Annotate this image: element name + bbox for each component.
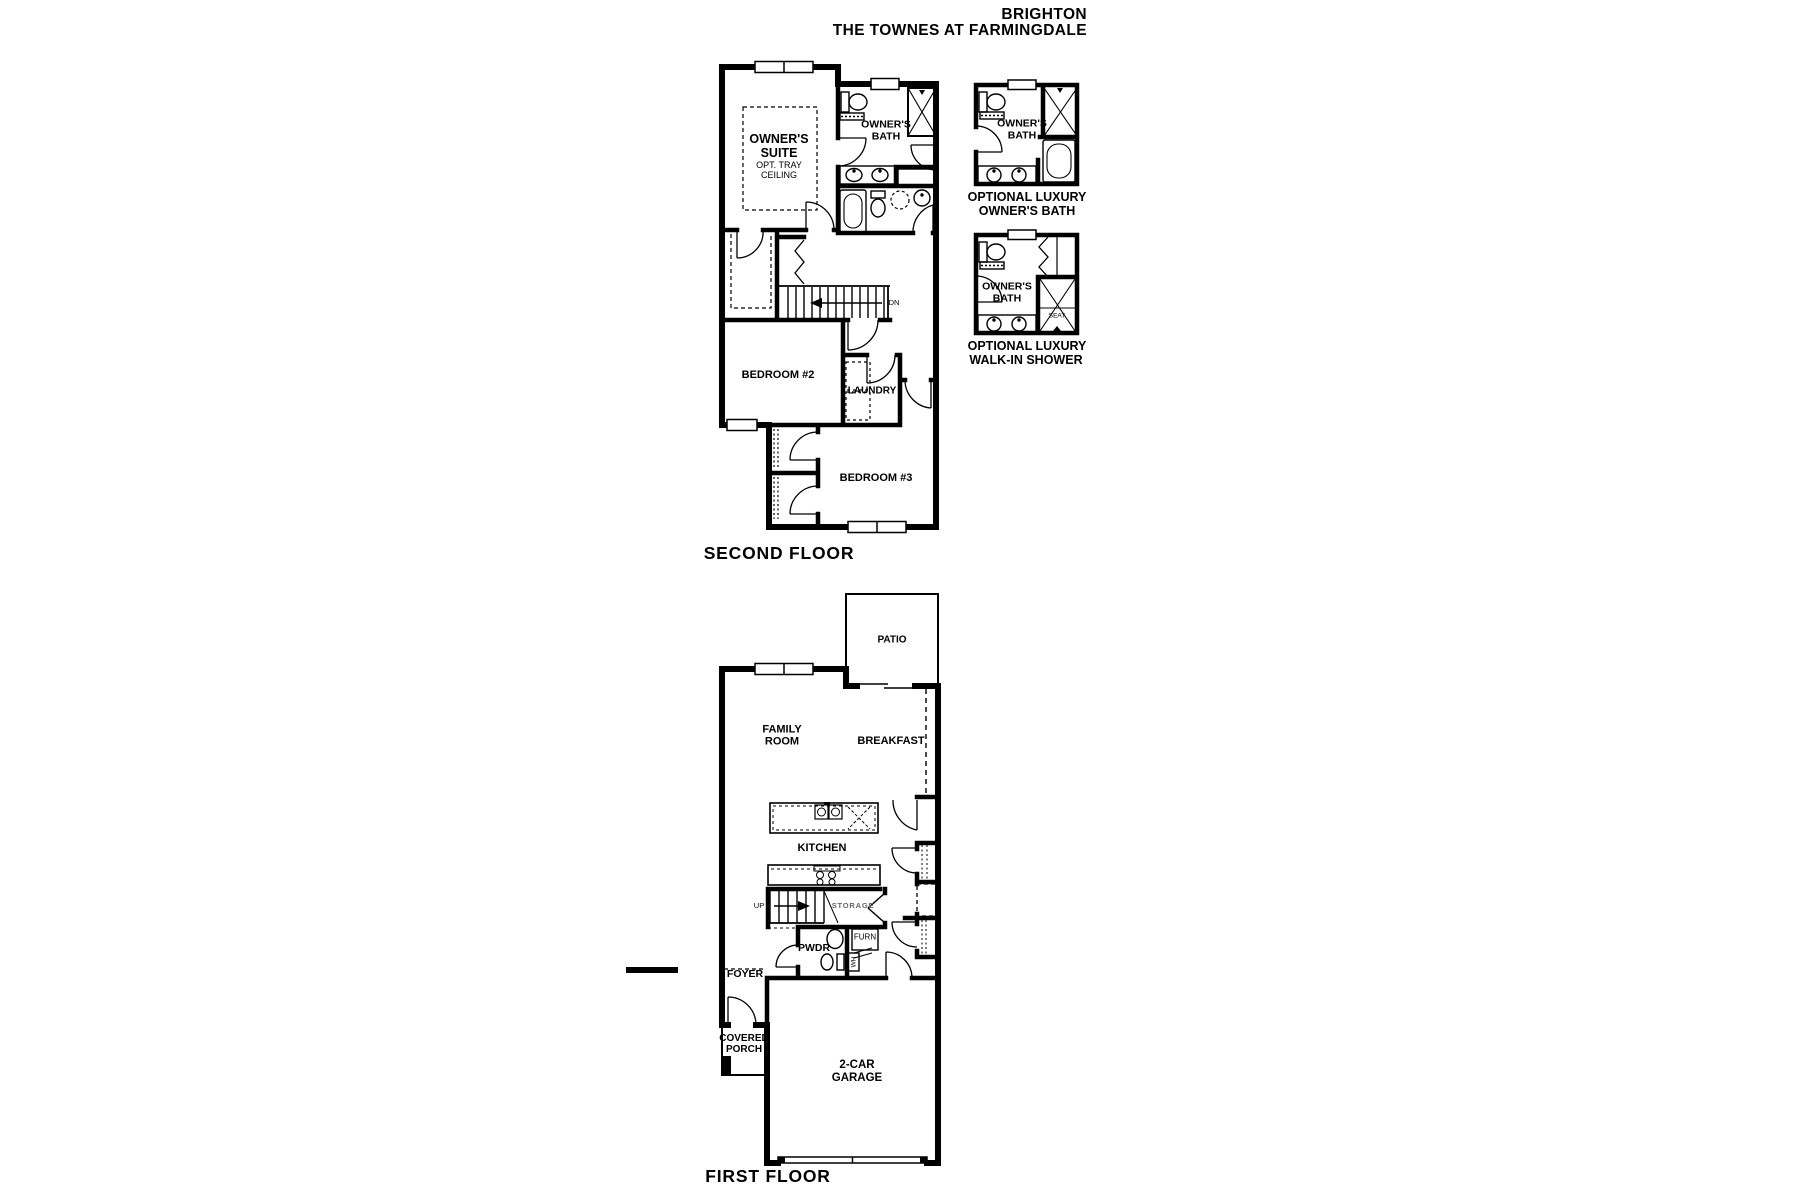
- floor-plan-page: BRIGHTON THE TOWNES AT FARMINGDALE OWNER…: [0, 0, 1800, 1200]
- first-floor-caption: FIRST FLOOR: [705, 1167, 830, 1187]
- toilet-bowl: [849, 94, 867, 110]
- tub: [840, 190, 866, 232]
- owners-suite-note: OPT. TRAY CEILING: [748, 160, 810, 180]
- owners-suite-label: OWNER'S SUITE: [737, 132, 821, 160]
- toilet-bowl: [987, 94, 1005, 110]
- hall-toilet-bowl: [871, 199, 885, 217]
- patio-label: PATIO: [877, 634, 906, 645]
- furnace-label: FURN: [854, 934, 876, 943]
- hall-door: [893, 800, 917, 830]
- linen-basket: [891, 191, 909, 209]
- stair-arrow: [798, 901, 810, 911]
- bedroom2-window: [727, 420, 757, 431]
- linen-bifold-door: [795, 240, 804, 284]
- toilet-bowl: [987, 244, 1005, 260]
- second-floor-caption: SECOND FLOOR: [704, 544, 855, 564]
- storage-label: STORAGE: [832, 902, 875, 910]
- coat-closet-door: [892, 922, 917, 947]
- shower-seat-label: SEAT: [1049, 312, 1066, 319]
- toilet-tank: [841, 92, 849, 112]
- bedroom3-door: [905, 380, 931, 408]
- powder-door: [776, 945, 798, 967]
- double-vanity: [978, 166, 1036, 184]
- window: [1008, 230, 1036, 240]
- closet-shelves: [922, 920, 926, 955]
- breakfast-label: BREAKFAST: [857, 735, 924, 747]
- closet2-door: [790, 486, 818, 514]
- water-heater-label: WH: [850, 957, 857, 968]
- dishwasher-x: [848, 807, 870, 829]
- kitchen-island: [770, 802, 878, 833]
- opt-bath1-caption1: OPTIONAL LUXURY: [968, 190, 1087, 204]
- powder-toilet-bowl: [821, 954, 833, 970]
- towel-bar: [980, 262, 1004, 269]
- hall-toilet-tank: [871, 191, 885, 198]
- shower-x: [1040, 279, 1075, 331]
- powder-label: PWDR: [798, 943, 830, 955]
- suite-entry-door: [806, 202, 834, 230]
- opt-bath2-caption2: WALK-IN SHOWER: [969, 353, 1082, 367]
- bedroom2-door: [848, 320, 878, 350]
- kitchen-label: KITCHEN: [798, 842, 847, 854]
- covered-porch-label: COVERED PORCH: [717, 1033, 771, 1055]
- laundry-label: LAUNDRY: [848, 385, 897, 396]
- pantry-shelves: [922, 845, 927, 880]
- powder-toilet-tank: [837, 954, 844, 970]
- window: [1008, 80, 1036, 90]
- stairs-up: [768, 891, 838, 928]
- toilet-tank: [979, 92, 987, 112]
- opt-bath1-room-label: OWNER'S BATH: [991, 118, 1053, 142]
- opt-bath2-caption1: OPTIONAL LUXURY: [968, 339, 1087, 353]
- tub: [1043, 140, 1075, 182]
- hall-bath-door: [913, 205, 933, 233]
- pantry-door: [892, 848, 917, 873]
- opt-bath2-room-label: OWNER'S BATH: [976, 281, 1038, 305]
- laundry-door: [867, 355, 895, 383]
- foyer-label: FOYER: [727, 969, 763, 981]
- closet-bifold-door: [1039, 237, 1048, 277]
- garage-entry-door: [886, 952, 912, 978]
- porch-column: [722, 1056, 731, 1074]
- bath-window: [871, 79, 899, 90]
- interior-walls: [767, 797, 938, 1025]
- garage-label: 2-CAR GARAGE: [825, 1059, 889, 1085]
- closet1-door: [790, 432, 818, 460]
- double-vanity: [840, 166, 896, 184]
- stair-dn-label: DN: [889, 299, 900, 307]
- plan-title-line2: THE TOWNES AT FARMINGDALE: [833, 22, 1087, 40]
- owners-bath-label: OWNER'S BATH: [855, 119, 917, 143]
- double-vanity: [978, 315, 1036, 333]
- stairs-down: [779, 286, 890, 320]
- wic-door: [737, 230, 763, 258]
- stair-up-label: UP: [754, 902, 764, 910]
- first-floor-plan: [626, 594, 938, 1163]
- bedroom3-label: BEDROOM #3: [840, 472, 913, 484]
- kitchen-counter: [768, 865, 880, 885]
- counter: [898, 169, 934, 185]
- bedroom2-label: BEDROOM #2: [742, 369, 815, 381]
- family-room-label: FAMILY ROOM: [753, 724, 811, 749]
- patio-slider: [860, 681, 912, 691]
- floor-plan-drawing: [0, 0, 1800, 1200]
- front-door: [728, 997, 756, 1025]
- opt-bath1-caption2: OWNER'S BATH: [979, 204, 1075, 218]
- hall-sink: [914, 190, 930, 206]
- toilet-tank: [979, 242, 987, 262]
- refrigerator: [917, 884, 937, 916]
